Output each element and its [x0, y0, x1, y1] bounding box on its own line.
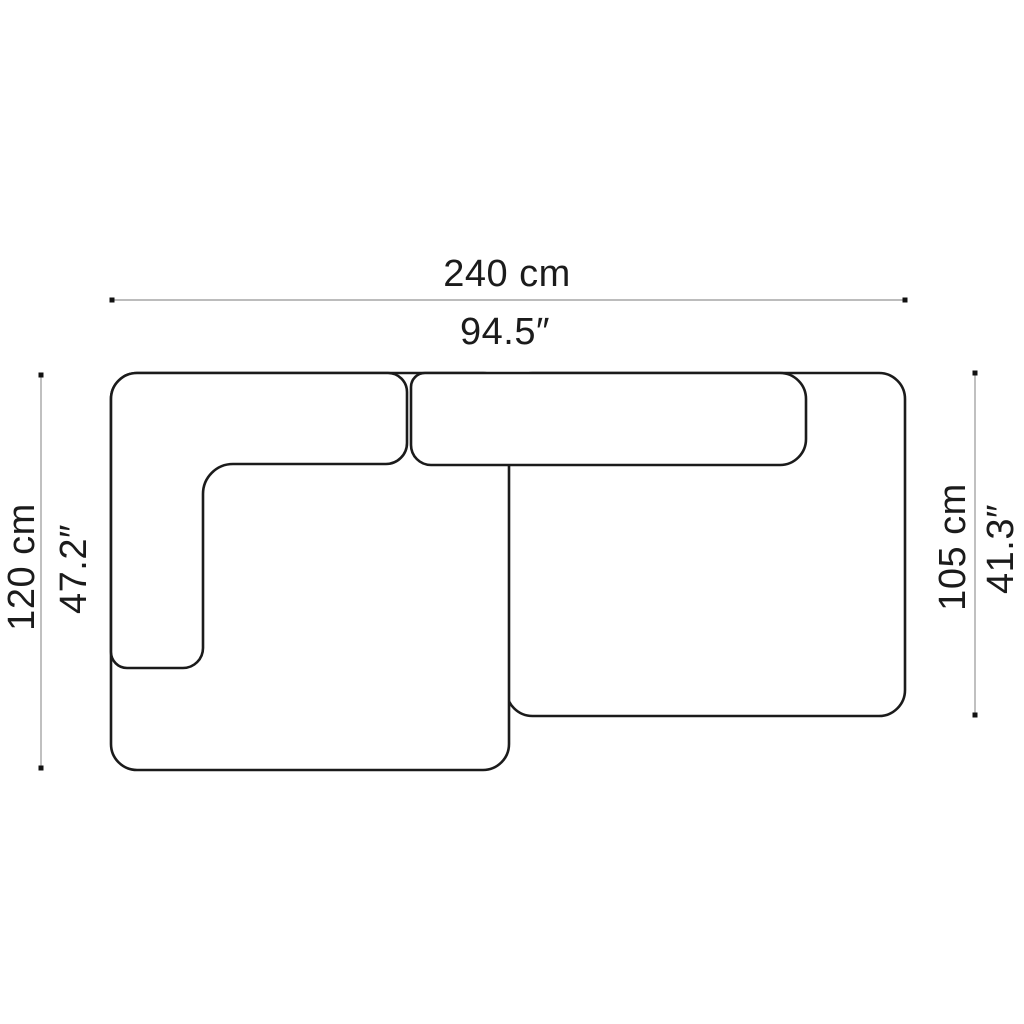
dimension-end-marker	[110, 298, 115, 303]
dimension-end-marker	[903, 298, 908, 303]
sofa-outlines	[111, 373, 905, 770]
left-depth-label-metric: 120 cm	[1, 503, 43, 631]
back-cushion-outline	[411, 373, 806, 465]
right-depth-label-imperial: 41.3″	[980, 504, 1022, 594]
dimension-end-marker	[973, 713, 978, 718]
diagram-canvas: 240 cm 94.5″ 120 cm 47.2″ 105 cm 41.3″	[0, 0, 1024, 1024]
dimension-end-marker	[39, 766, 44, 771]
width-label-metric: 240 cm	[443, 253, 571, 295]
width-label-imperial: 94.5″	[460, 311, 550, 353]
dimension-end-marker	[973, 371, 978, 376]
sofa-dimension-diagram: 240 cm 94.5″ 120 cm 47.2″ 105 cm 41.3″	[0, 0, 1024, 1024]
dimension-end-marker	[39, 373, 44, 378]
left-depth-label-imperial: 47.2″	[53, 524, 95, 614]
right-depth-label-metric: 105 cm	[932, 483, 974, 611]
